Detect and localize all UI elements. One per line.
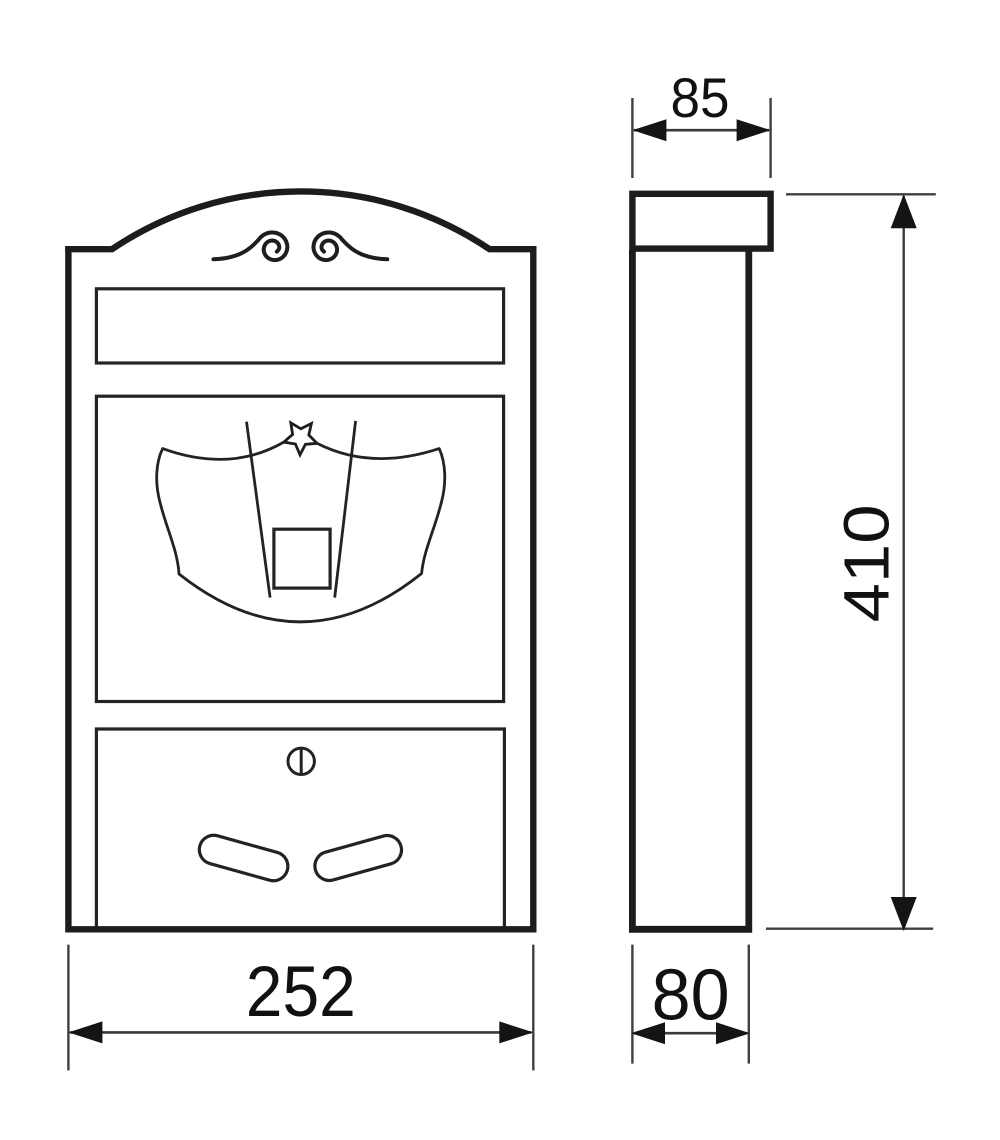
svg-text:252: 252 (246, 953, 356, 1032)
svg-text:85: 85 (671, 67, 730, 129)
svg-text:80: 80 (652, 956, 730, 1036)
svg-text:410: 410 (831, 504, 903, 622)
